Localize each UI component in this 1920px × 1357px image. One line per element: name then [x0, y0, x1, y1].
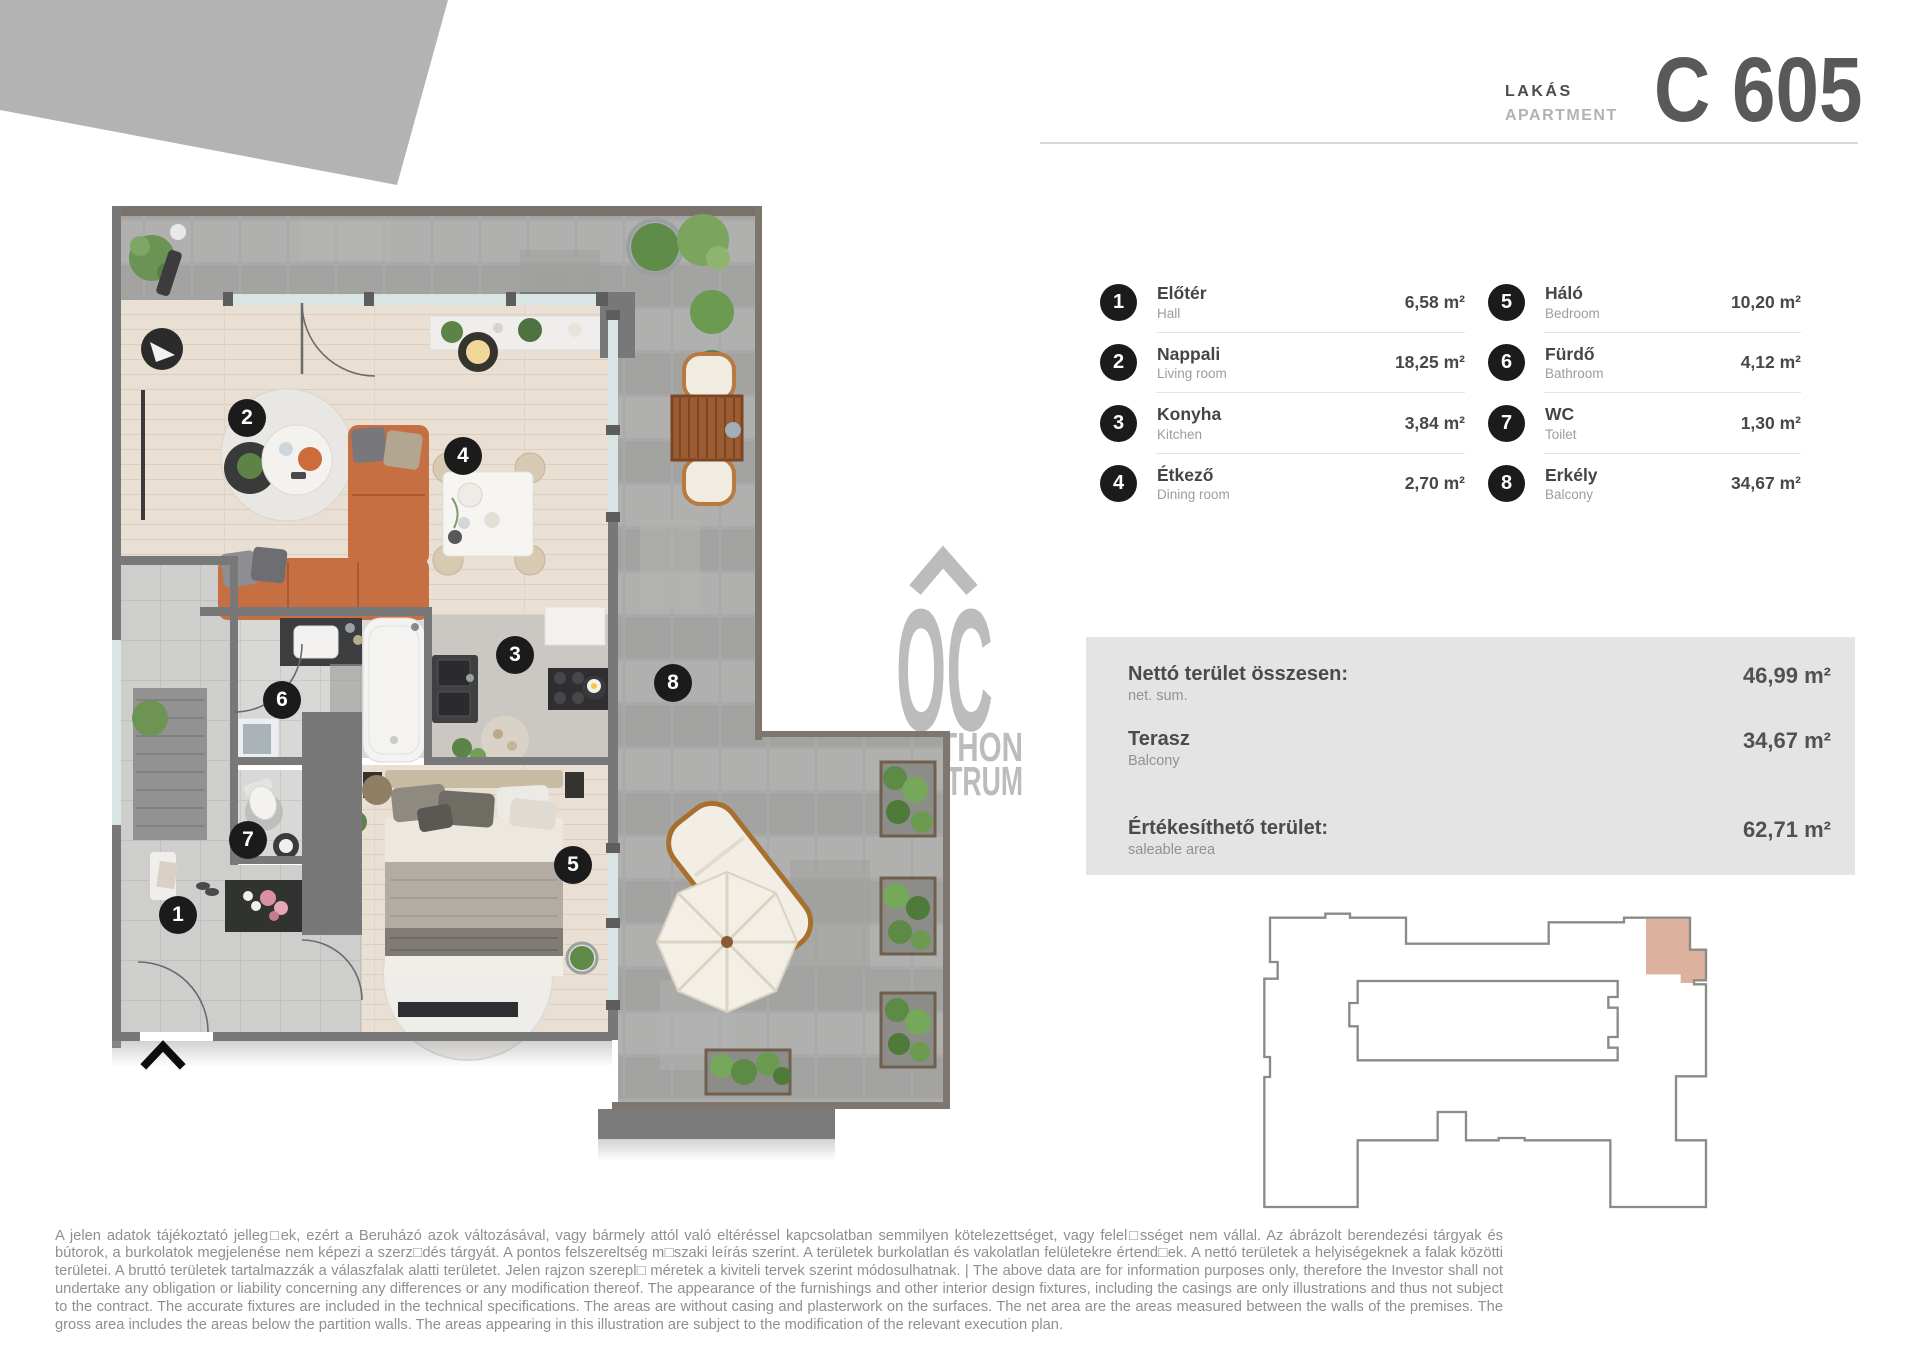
round-mat [481, 716, 529, 764]
plan-badge-4: 4 [444, 437, 482, 475]
corner-decoration [0, 0, 448, 185]
tv-bench [398, 1002, 518, 1017]
plan-badge-2: 2 [228, 399, 266, 437]
balcony-table [672, 354, 742, 504]
planter [881, 993, 935, 1067]
hall-plant [132, 700, 168, 736]
nightstand [565, 772, 584, 798]
pouf [362, 775, 392, 805]
plan-badge-8: 8 [654, 664, 692, 702]
bed [385, 770, 563, 976]
plan-badge-5: 5 [554, 846, 592, 884]
console-table [225, 880, 303, 932]
floor-plan [0, 0, 1920, 1357]
planter [881, 878, 935, 954]
plan-badge-6: 6 [263, 681, 301, 719]
plan-badge-7: 7 [229, 821, 267, 859]
plan-badge-3: 3 [496, 636, 534, 674]
planter [881, 762, 935, 836]
planter [706, 1050, 791, 1094]
parasol [657, 872, 797, 1012]
plan-badge-1: 1 [159, 896, 197, 934]
